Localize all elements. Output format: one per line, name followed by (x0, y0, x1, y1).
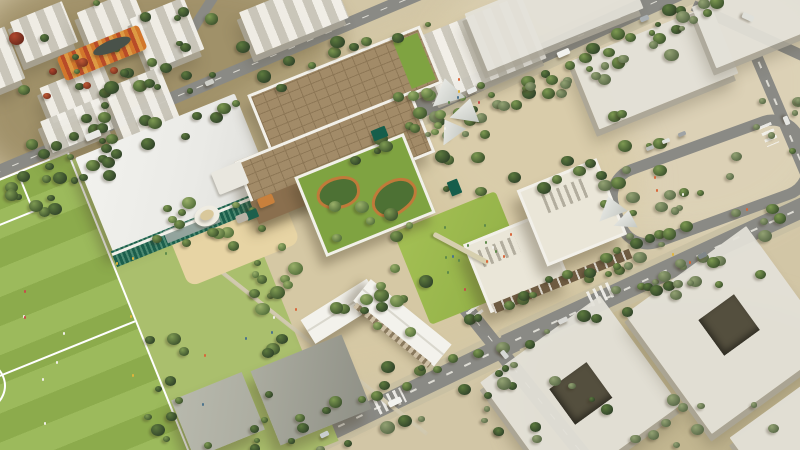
tree (140, 12, 151, 22)
person (295, 308, 297, 311)
tree (689, 16, 698, 24)
tree (675, 259, 686, 268)
tree (618, 55, 628, 64)
tree (376, 282, 386, 290)
tree (418, 416, 425, 422)
tree (655, 202, 668, 213)
tree (360, 307, 369, 314)
tree (51, 141, 62, 150)
tree (413, 107, 427, 119)
tree (147, 58, 157, 67)
tree (573, 166, 586, 177)
tree (525, 82, 536, 91)
tree (278, 243, 287, 250)
tree (192, 112, 201, 120)
tree (792, 110, 798, 116)
tree (568, 383, 575, 389)
tree (83, 82, 91, 89)
tree (145, 336, 155, 345)
tree (332, 234, 341, 242)
tree (511, 100, 523, 110)
tree (255, 303, 269, 315)
tree (546, 75, 558, 85)
tree (556, 89, 567, 99)
tree (418, 365, 425, 371)
tree (475, 187, 486, 196)
tree (93, 0, 100, 6)
tree (270, 286, 285, 299)
person (448, 101, 450, 104)
tree (106, 134, 118, 144)
tree (768, 424, 779, 433)
tree (613, 263, 621, 270)
tree (617, 110, 627, 118)
tree (322, 407, 330, 414)
person (63, 332, 65, 335)
tree (9, 32, 24, 45)
tree (586, 43, 599, 54)
tree (707, 257, 720, 268)
tree (603, 48, 614, 58)
tree (316, 446, 324, 450)
person (485, 241, 487, 244)
tree (611, 28, 625, 40)
tree (768, 132, 775, 138)
person (445, 256, 447, 259)
tree (410, 124, 420, 132)
person (447, 271, 449, 274)
tree (626, 192, 639, 203)
tree (673, 442, 680, 448)
tree (525, 340, 535, 348)
tree (510, 362, 517, 368)
tree (360, 294, 373, 305)
tree (650, 285, 663, 296)
tree (648, 430, 659, 440)
tree (175, 397, 183, 403)
tree (497, 377, 512, 389)
person (245, 337, 247, 340)
tree (448, 354, 458, 363)
person (682, 193, 684, 196)
tree (38, 149, 50, 159)
tree (207, 228, 218, 238)
person (130, 315, 132, 318)
center-circle (0, 353, 13, 418)
tree (435, 150, 450, 162)
tree (86, 160, 99, 171)
person (478, 101, 480, 104)
tree (789, 148, 796, 154)
person (510, 233, 512, 236)
tree (671, 207, 680, 215)
tree (101, 144, 112, 153)
tree (366, 217, 375, 224)
tree (795, 98, 800, 104)
tree (111, 149, 123, 159)
tree (371, 391, 383, 401)
tree (484, 406, 490, 411)
person (204, 354, 206, 357)
tree (471, 152, 484, 163)
tree (181, 71, 192, 80)
tree (630, 435, 640, 444)
tree (481, 418, 487, 424)
person (271, 331, 273, 334)
tree (361, 37, 371, 46)
tree (276, 84, 286, 93)
tree (498, 101, 510, 111)
tree (518, 291, 530, 301)
tree (350, 156, 361, 165)
person (495, 250, 497, 253)
person (44, 422, 46, 425)
tree (168, 216, 176, 223)
tree (276, 334, 288, 344)
tree (329, 201, 341, 211)
tree (182, 197, 196, 209)
tree (530, 422, 541, 432)
tree (261, 417, 268, 423)
aerial-campus-rendering (0, 0, 800, 450)
tree (658, 271, 671, 282)
person (464, 288, 466, 291)
tree (605, 271, 612, 277)
tree (751, 402, 757, 407)
person (467, 244, 469, 247)
tree (67, 154, 74, 160)
tree (204, 442, 212, 449)
person (202, 403, 204, 406)
halfway-line (0, 320, 135, 407)
tree (103, 170, 116, 181)
tree (181, 133, 190, 140)
tree (562, 270, 572, 279)
tree (630, 238, 643, 249)
tree (624, 262, 633, 270)
tree (209, 72, 216, 78)
tree (141, 138, 155, 150)
person (444, 226, 446, 229)
tree (250, 444, 260, 450)
tree (584, 268, 595, 278)
tree (232, 202, 240, 209)
tree (358, 396, 366, 403)
tree (726, 173, 734, 180)
tree (330, 302, 343, 313)
tree (329, 396, 342, 407)
tree (18, 85, 30, 95)
tree (390, 295, 404, 306)
tree (72, 54, 79, 60)
tree (611, 177, 626, 189)
tree (163, 436, 170, 442)
tree (591, 72, 601, 80)
tree (69, 132, 79, 141)
tree (398, 415, 412, 427)
tree (537, 182, 551, 194)
tree (670, 290, 682, 300)
courtyard-hole (549, 362, 612, 425)
tree (376, 302, 388, 312)
tree (495, 370, 503, 377)
tree (565, 61, 576, 70)
tree (759, 98, 765, 103)
tree (433, 366, 442, 373)
tree (673, 280, 683, 289)
tree (71, 177, 79, 184)
tree (474, 314, 483, 321)
person (42, 378, 44, 381)
tree (78, 58, 88, 67)
tree (254, 260, 261, 266)
tree (392, 33, 404, 43)
tree (664, 49, 679, 61)
tree (598, 180, 612, 192)
tree (697, 190, 704, 196)
person (132, 374, 134, 377)
tree (473, 349, 484, 358)
tree (406, 222, 414, 229)
tree (679, 188, 689, 197)
tree (408, 91, 419, 101)
tree (120, 69, 128, 76)
person (458, 259, 460, 262)
tree (148, 117, 162, 129)
person (24, 290, 26, 293)
tree (308, 62, 316, 68)
tree (633, 252, 647, 264)
tree (532, 435, 542, 444)
tree (265, 391, 273, 398)
tree (328, 47, 341, 58)
tree (480, 130, 490, 139)
tree (98, 112, 111, 123)
tree (542, 88, 555, 99)
tree (217, 103, 230, 114)
tree (645, 234, 655, 242)
tree (760, 218, 768, 225)
tree (561, 156, 573, 167)
tree (618, 140, 632, 152)
tree (166, 412, 176, 421)
tree (419, 275, 433, 287)
tree (79, 174, 88, 181)
person (452, 255, 454, 258)
tree (698, 0, 709, 9)
person (273, 316, 275, 319)
tree (715, 281, 723, 288)
tree (579, 53, 592, 64)
tree (393, 92, 404, 102)
tree (43, 93, 51, 100)
tree (390, 264, 400, 273)
tree (160, 63, 172, 73)
tree (373, 322, 382, 330)
tree (384, 208, 399, 220)
tree (596, 171, 606, 180)
tree (662, 4, 677, 16)
tree (379, 141, 392, 152)
tree (663, 228, 677, 240)
tree (600, 253, 613, 264)
tree (257, 70, 271, 82)
tree (652, 279, 659, 285)
tree (288, 438, 295, 444)
tree (81, 114, 91, 123)
person (486, 260, 488, 263)
tree (703, 9, 712, 17)
tree (165, 376, 176, 385)
tree (379, 381, 390, 390)
tree (381, 361, 395, 373)
tree (577, 310, 591, 322)
tree (53, 172, 67, 184)
person (492, 246, 494, 249)
tree (374, 289, 389, 302)
tree (288, 262, 303, 275)
tree (462, 131, 469, 137)
tree (697, 403, 704, 409)
person (656, 189, 658, 192)
tree (622, 307, 633, 316)
tree (104, 81, 119, 94)
courtyard-hole (698, 294, 759, 355)
tree (152, 235, 161, 243)
tree (26, 139, 38, 149)
tree (502, 365, 510, 372)
tree (205, 13, 219, 25)
tree (664, 190, 676, 200)
tree (402, 382, 412, 391)
tree (154, 84, 161, 90)
